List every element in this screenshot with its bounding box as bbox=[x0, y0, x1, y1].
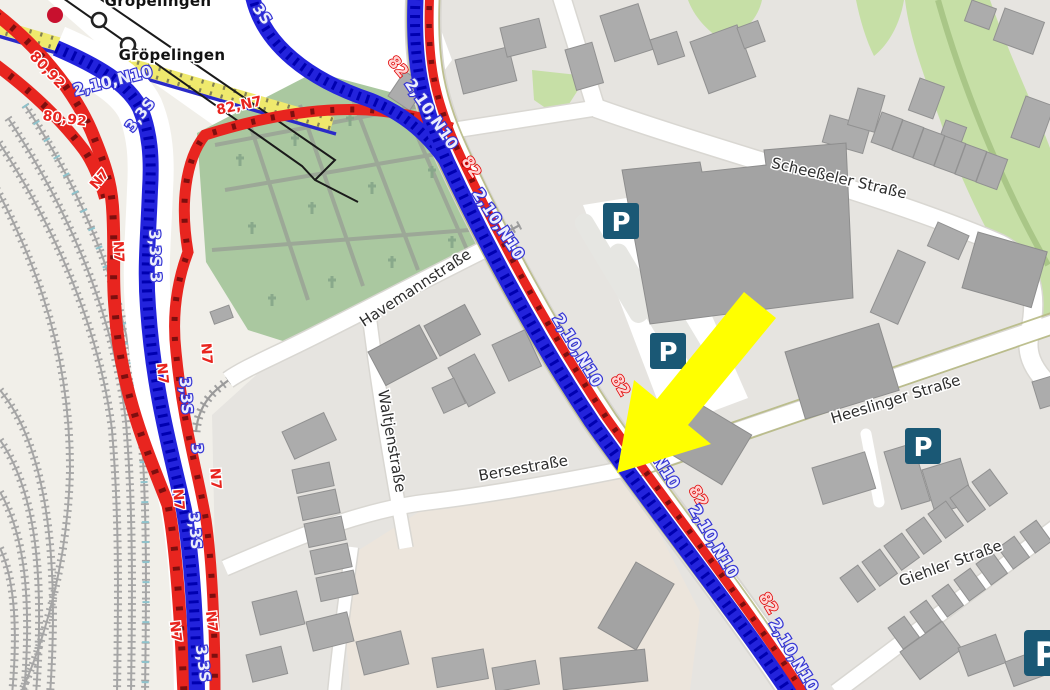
parking-icon: P bbox=[1024, 630, 1050, 676]
route-label: 3 bbox=[188, 443, 207, 455]
station-marker-dot bbox=[47, 7, 63, 23]
map-canvas: Gröpelingen Gröpelingen 80,92 80,92 82,N… bbox=[0, 0, 1050, 690]
svg-text:P: P bbox=[611, 208, 630, 238]
svg-text:P: P bbox=[913, 433, 932, 463]
svg-text:P: P bbox=[1035, 635, 1050, 675]
route-label: N7 bbox=[166, 620, 184, 643]
place-label-groepelingen: Gröpelingen bbox=[105, 0, 212, 10]
parking-icon: P bbox=[905, 428, 941, 464]
route-label: 3,3S bbox=[176, 376, 197, 415]
parking-icon: P bbox=[603, 203, 639, 239]
station-entrance bbox=[92, 13, 106, 27]
route-label: N7 bbox=[153, 362, 171, 385]
svg-text:P: P bbox=[658, 338, 677, 368]
map-viewport[interactable]: Gröpelingen Gröpelingen 80,92 80,92 82,N… bbox=[0, 0, 1050, 690]
route-label: N7 bbox=[169, 488, 187, 511]
route-label: N7 bbox=[197, 342, 214, 365]
place-label-groepelingen: Gröpelingen bbox=[119, 46, 226, 64]
route-label: N7 bbox=[206, 467, 223, 490]
parking-icon: P bbox=[650, 333, 686, 369]
route-label: N7 bbox=[202, 610, 220, 633]
route-label: 3,3S 3 bbox=[145, 229, 165, 283]
route-label: 3,3S bbox=[184, 511, 205, 550]
route-label: N7 bbox=[109, 241, 126, 263]
